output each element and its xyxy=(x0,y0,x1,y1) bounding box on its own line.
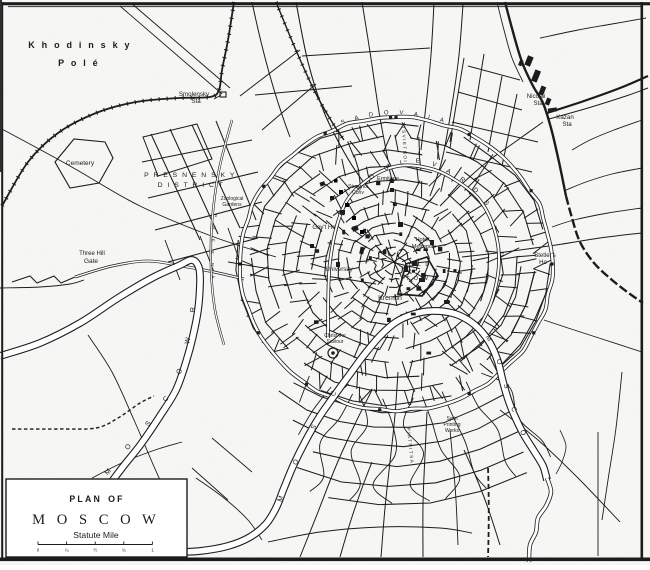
svg-text:¾: ¾ xyxy=(122,548,126,553)
svg-text:P R E S N E N S K Y: P R E S N E N S K Y xyxy=(144,172,236,179)
svg-text:Cemetery: Cemetery xyxy=(66,160,95,167)
svg-text:Kremlin: Kremlin xyxy=(378,295,402,302)
svg-text:Nicolai: Nicolai xyxy=(527,93,546,100)
svg-text:Works: Works xyxy=(445,428,460,434)
svg-text:¼: ¼ xyxy=(65,548,69,553)
svg-text:Saviour: Saviour xyxy=(327,339,344,345)
svg-text:Sta: Sta xyxy=(533,100,543,107)
svg-text:K h o d i n s k y: K h o d i n s k y xyxy=(28,40,131,50)
svg-text:O L D: O L D xyxy=(409,262,431,268)
svg-text:Kazan: Kazan xyxy=(556,114,574,121)
svg-text:Conv: Conv xyxy=(352,190,364,196)
svg-text:D I S T R I C T: D I S T R I C T xyxy=(158,182,225,189)
svg-text:Gov't Ho: Gov't Ho xyxy=(312,225,336,231)
svg-text:Sta: Sta xyxy=(191,98,201,105)
svg-text:Three Hill: Three Hill xyxy=(79,251,105,257)
svg-text:Ho: Ho xyxy=(539,260,547,266)
svg-text:Gardens: Gardens xyxy=(222,202,242,208)
svg-text:M O S C O W: M O S C O W xyxy=(32,512,160,528)
svg-text:University: University xyxy=(325,266,353,273)
svg-text:Metropole: Metropole xyxy=(412,244,436,250)
svg-text:½: ½ xyxy=(93,547,97,553)
svg-text:T O W N: T O W N xyxy=(406,276,438,282)
svg-text:P o l é: P o l é xyxy=(58,58,100,68)
svg-text:Statute Mile: Statute Mile xyxy=(73,530,119,540)
svg-text:Ermitage: Ermitage xyxy=(377,176,399,182)
svg-text:Stetler's: Stetler's xyxy=(534,253,556,259)
svg-text:PLANOF: PLANOF xyxy=(69,494,124,504)
svg-text:Hotel: Hotel xyxy=(416,237,429,243)
svg-text:Gate: Gate xyxy=(84,258,98,265)
svg-text:Smolensky: Smolensky xyxy=(179,91,210,98)
svg-text:Sta: Sta xyxy=(562,121,572,128)
